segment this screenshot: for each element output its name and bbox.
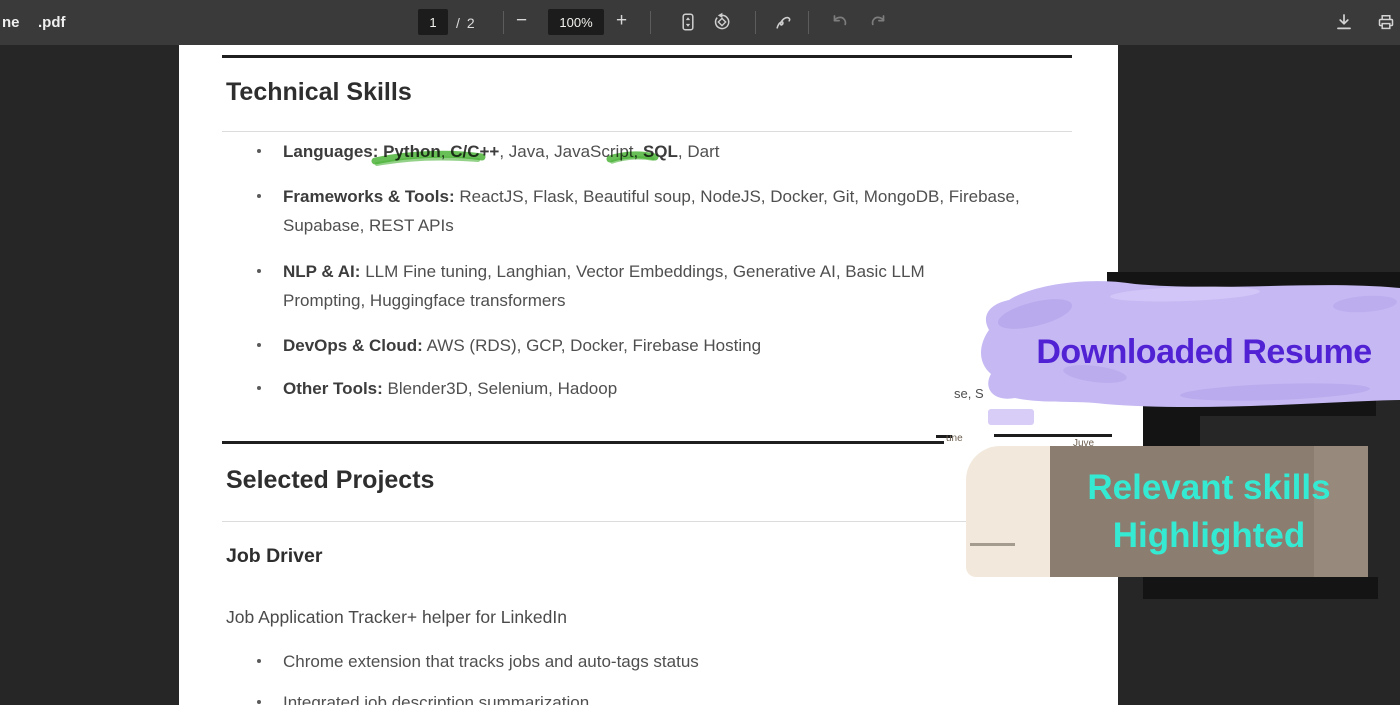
bullet-dot bbox=[257, 269, 261, 273]
download-icon[interactable] bbox=[1334, 12, 1354, 32]
rotate-icon[interactable] bbox=[712, 12, 732, 32]
skill-bullet-frameworks: Frameworks & Tools: ReactJS, Flask, Beau… bbox=[257, 182, 1063, 240]
page-number-input[interactable]: 1 bbox=[418, 9, 448, 35]
zoom-level-value: 100% bbox=[559, 15, 592, 30]
skill-label: Languages: bbox=[283, 142, 378, 161]
zoom-out-button[interactable]: − bbox=[516, 10, 527, 32]
preview-text-fragment: se, S bbox=[954, 386, 984, 401]
preview-text-fragment: une bbox=[946, 433, 963, 444]
beige-dash bbox=[970, 543, 1015, 546]
annotation-line-1: Relevant skills bbox=[1087, 464, 1330, 512]
preview-highlight-blob bbox=[988, 409, 1034, 425]
zoom-level-input[interactable]: 100% bbox=[548, 9, 604, 35]
section-divider-light bbox=[222, 521, 1072, 522]
toolbar-divider bbox=[650, 11, 651, 34]
skill-highlighted-python: Python bbox=[383, 142, 441, 161]
toolbar-divider bbox=[503, 11, 504, 34]
overlay-shadow-patch bbox=[1143, 577, 1378, 599]
pdf-page: Technical Skills Languages: Python, C/C+… bbox=[179, 45, 1118, 705]
project-bullet: Chrome extension that tracks jobs and au… bbox=[257, 647, 699, 676]
bullet-dot bbox=[257, 149, 261, 153]
skill-bullet-nlp-ai: NLP & AI: LLM Fine tuning, Langhian, Vec… bbox=[257, 257, 983, 315]
section-title-technical-skills: Technical Skills bbox=[226, 78, 412, 107]
section-title-selected-projects: Selected Projects bbox=[226, 466, 434, 495]
bullet-dot bbox=[257, 659, 261, 663]
project-bullet: Integrated job description summarization bbox=[257, 688, 589, 705]
bullet-dot bbox=[257, 700, 261, 704]
pdf-toolbar: ne .pdf 1 / 2 − 100% + bbox=[0, 0, 1400, 45]
section-divider-thick bbox=[222, 55, 1072, 58]
overlay-shadow-patch bbox=[1140, 404, 1200, 446]
preview-divider-fragment bbox=[994, 434, 1112, 437]
project-title: Job Driver bbox=[226, 545, 322, 568]
downloaded-resume-annotation: Downloaded Resume bbox=[1008, 333, 1400, 372]
page-separator: / bbox=[456, 15, 460, 31]
page-total: 2 bbox=[467, 15, 475, 31]
bullet-dot bbox=[257, 343, 261, 347]
print-icon[interactable] bbox=[1376, 12, 1396, 32]
redo-icon[interactable] bbox=[868, 12, 888, 32]
resume-preview-fragment bbox=[944, 403, 1143, 446]
skill-bullet-other-tools: Other Tools: Blender3D, Selenium, Hadoop bbox=[257, 374, 617, 403]
pdf-viewer-window: ne .pdf 1 / 2 − 100% + bbox=[0, 0, 1400, 705]
section-divider-light bbox=[222, 131, 1072, 132]
project-subtitle: Job Application Tracker+ helper for Link… bbox=[226, 607, 567, 628]
fit-to-page-icon[interactable] bbox=[678, 12, 698, 32]
zoom-in-button[interactable]: + bbox=[616, 10, 627, 32]
annotate-pen-icon[interactable] bbox=[774, 12, 794, 32]
toolbar-divider bbox=[755, 11, 756, 34]
skill-highlighted-sql: SQL bbox=[643, 142, 678, 161]
skill-bullet-devops: DevOps & Cloud: AWS (RDS), GCP, Docker, … bbox=[257, 331, 761, 360]
overlay-shadow-patch bbox=[1180, 398, 1376, 416]
annotation-line-2: Highlighted bbox=[1113, 512, 1305, 560]
skill-highlighted-cpp: C/C++ bbox=[450, 142, 499, 161]
bullet-dot bbox=[257, 386, 261, 390]
undo-icon[interactable] bbox=[830, 12, 850, 32]
filename-pdf: .pdf bbox=[38, 14, 66, 31]
bullet-dot bbox=[257, 194, 261, 198]
page-count: / 2 bbox=[456, 15, 475, 31]
skill-bullet-languages: Languages: Python, C/C++, Java, JavaScri… bbox=[257, 137, 719, 166]
filename-fragment: ne bbox=[2, 14, 20, 31]
page-number-value: 1 bbox=[429, 15, 436, 30]
beige-callout-shape bbox=[966, 446, 1052, 577]
relevant-skills-annotation: Relevant skills Highlighted bbox=[1050, 446, 1368, 577]
overlay-shadow-patch bbox=[1107, 272, 1400, 302]
toolbar-divider bbox=[808, 11, 809, 34]
